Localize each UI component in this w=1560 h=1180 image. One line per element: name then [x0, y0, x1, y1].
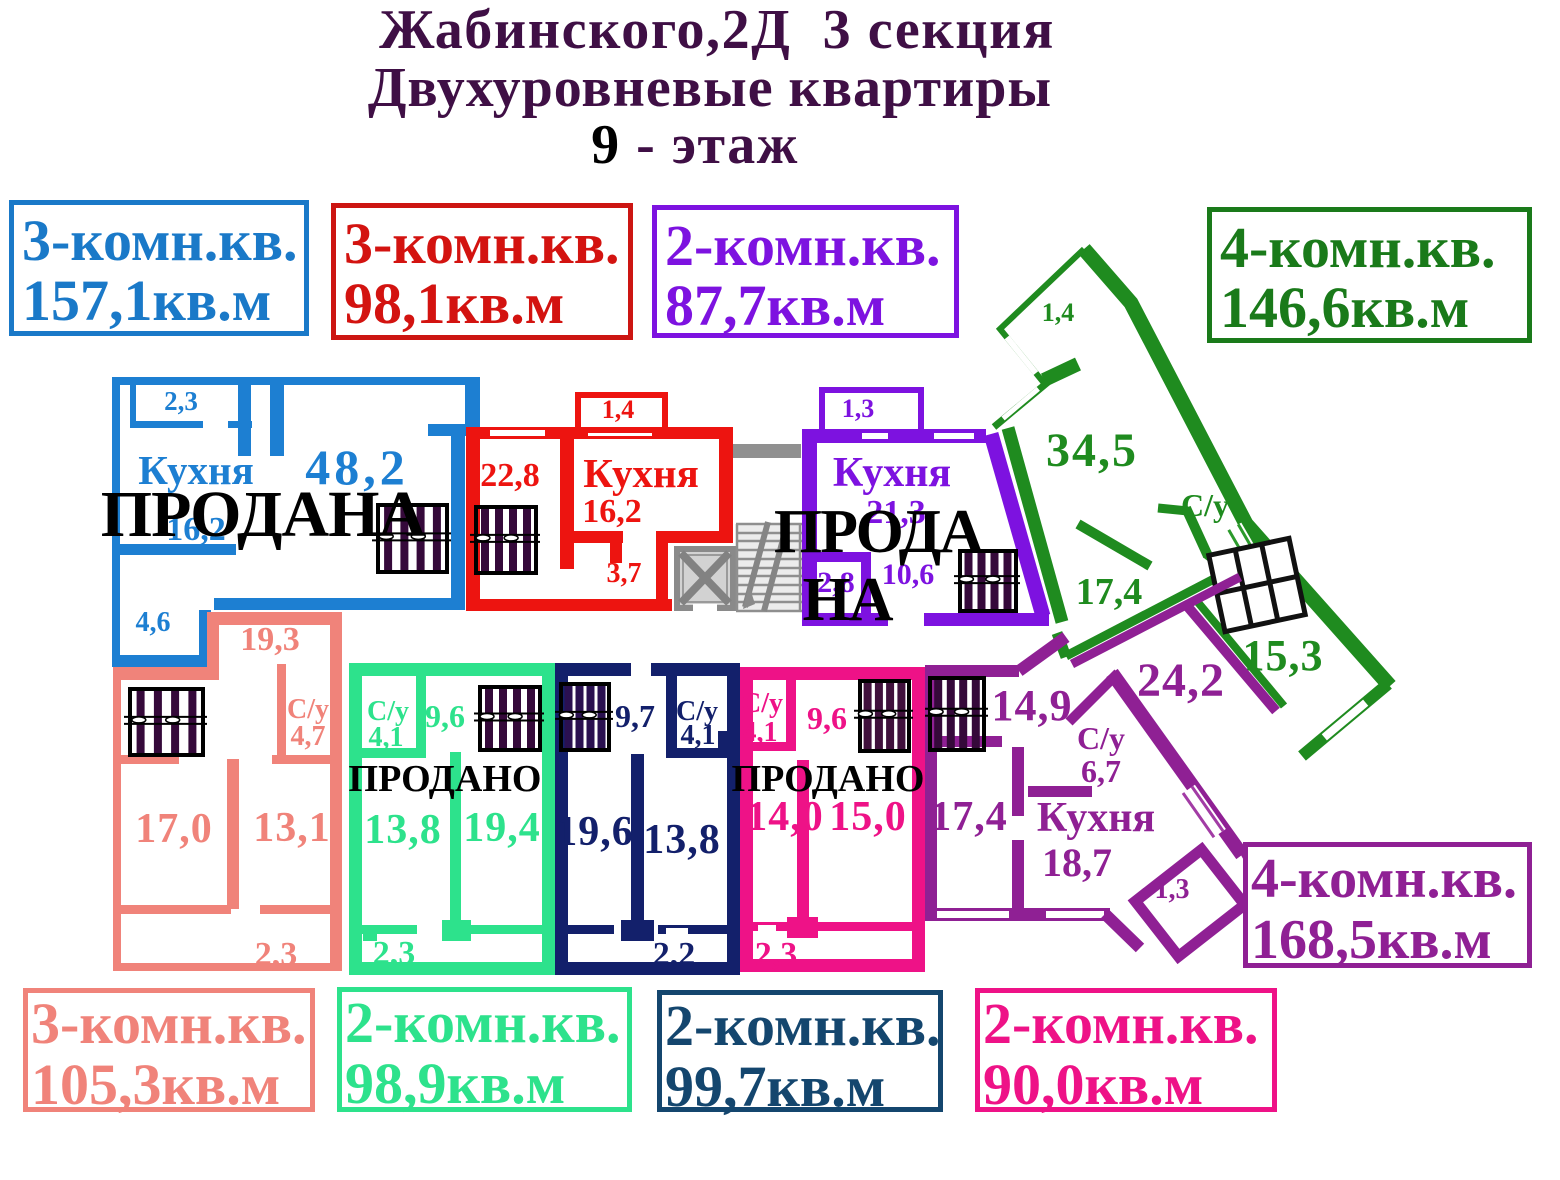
svg-text:2-комн.кв.: 2-комн.кв. — [665, 213, 941, 278]
svg-text:1,3: 1,3 — [842, 394, 875, 423]
svg-text:105,3кв.м: 105,3кв.м — [31, 1052, 280, 1117]
svg-text:С/у: С/у — [1077, 720, 1125, 756]
svg-text:ПРОДАНА: ПРОДАНА — [101, 478, 427, 551]
svg-text:13,1: 13,1 — [253, 805, 331, 851]
svg-text:9 - этаж: 9 - этаж — [591, 114, 799, 176]
svg-text:2-комн.кв.: 2-комн.кв. — [665, 993, 941, 1058]
svg-text:1,3: 1,3 — [1155, 874, 1190, 905]
svg-text:16,2: 16,2 — [582, 493, 642, 530]
svg-text:9,7: 9,7 — [615, 698, 655, 734]
svg-text:98,9кв.м: 98,9кв.м — [345, 1051, 565, 1116]
svg-text:9,6: 9,6 — [807, 700, 847, 736]
svg-text:4,1: 4,1 — [681, 720, 716, 751]
svg-text:19,6: 19,6 — [556, 809, 634, 855]
svg-text:9,6: 9,6 — [425, 698, 465, 734]
svg-text:Двухуровневые квартиры: Двухуровневые квартиры — [368, 57, 1052, 119]
svg-text:3-комн.кв.: 3-комн.кв. — [31, 991, 307, 1056]
svg-text:Кухня: Кухня — [833, 450, 951, 496]
svg-text:Кухня: Кухня — [1037, 795, 1155, 841]
svg-text:3-комн.кв.: 3-комн.кв. — [344, 211, 620, 276]
svg-text:ПРОДАНО: ПРОДАНО — [349, 758, 542, 800]
svg-text:2,3: 2,3 — [255, 936, 298, 973]
svg-text:146,6кв.м: 146,6кв.м — [1220, 275, 1469, 340]
svg-text:С/у: С/у — [1181, 487, 1229, 523]
svg-text:98,1кв.м: 98,1кв.м — [344, 271, 564, 336]
svg-text:99,7кв.м: 99,7кв.м — [665, 1054, 885, 1119]
svg-text:3-комн.кв.: 3-комн.кв. — [22, 208, 298, 273]
svg-text:17,4: 17,4 — [930, 794, 1008, 840]
svg-text:2,3: 2,3 — [164, 386, 198, 416]
svg-text:24,2: 24,2 — [1137, 654, 1225, 707]
svg-text:2-комн.кв.: 2-комн.кв. — [345, 990, 621, 1055]
svg-text:18,7: 18,7 — [1042, 840, 1112, 885]
svg-text:157,1кв.м: 157,1кв.м — [22, 268, 271, 333]
svg-text:2-комн.кв.: 2-комн.кв. — [983, 991, 1259, 1056]
svg-text:4,1: 4,1 — [369, 722, 404, 753]
svg-text:ПРОДАНО: ПРОДАНО — [732, 758, 925, 800]
svg-text:19,3: 19,3 — [240, 621, 300, 658]
svg-text:1,4: 1,4 — [602, 395, 635, 424]
svg-text:168,5кв.м: 168,5кв.м — [1251, 909, 1492, 971]
svg-text:34,5: 34,5 — [1046, 424, 1138, 477]
svg-text:4-комн.кв.: 4-комн.кв. — [1220, 215, 1496, 280]
svg-text:6,7: 6,7 — [1081, 753, 1121, 789]
svg-text:Жабинского,2Д 3 секция: Жабинского,2Д 3 секция — [379, 0, 1055, 61]
svg-text:4-комн.кв.: 4-комн.кв. — [1251, 848, 1517, 910]
svg-text:14,0: 14,0 — [746, 794, 824, 840]
svg-text:НА: НА — [803, 566, 894, 634]
svg-text:13,8: 13,8 — [643, 817, 721, 863]
svg-text:19,4: 19,4 — [463, 805, 541, 851]
svg-text:4,6: 4,6 — [136, 607, 171, 638]
svg-text:2,2: 2,2 — [653, 936, 696, 973]
svg-text:4,1: 4,1 — [743, 717, 778, 748]
svg-text:87,7кв.м: 87,7кв.м — [665, 273, 885, 338]
svg-text:15,3: 15,3 — [1243, 631, 1324, 680]
svg-text:14,9: 14,9 — [992, 681, 1073, 730]
svg-text:2,3: 2,3 — [373, 935, 416, 972]
svg-text:17,4: 17,4 — [1076, 571, 1143, 613]
svg-text:15,0: 15,0 — [829, 794, 907, 840]
svg-text:2,3: 2,3 — [755, 936, 798, 973]
svg-text:90,0кв.м: 90,0кв.м — [983, 1052, 1203, 1117]
svg-text:С/у: С/у — [741, 688, 783, 719]
svg-text:3,7: 3,7 — [607, 558, 642, 589]
svg-text:13,8: 13,8 — [364, 807, 442, 853]
svg-text:22,8: 22,8 — [480, 457, 540, 494]
svg-text:1,4: 1,4 — [1042, 298, 1075, 327]
svg-text:4,7: 4,7 — [291, 721, 326, 752]
svg-text:17,0: 17,0 — [135, 806, 213, 852]
svg-text:ПРОДА: ПРОДА — [774, 498, 985, 566]
svg-text:Кухня: Кухня — [583, 450, 699, 496]
